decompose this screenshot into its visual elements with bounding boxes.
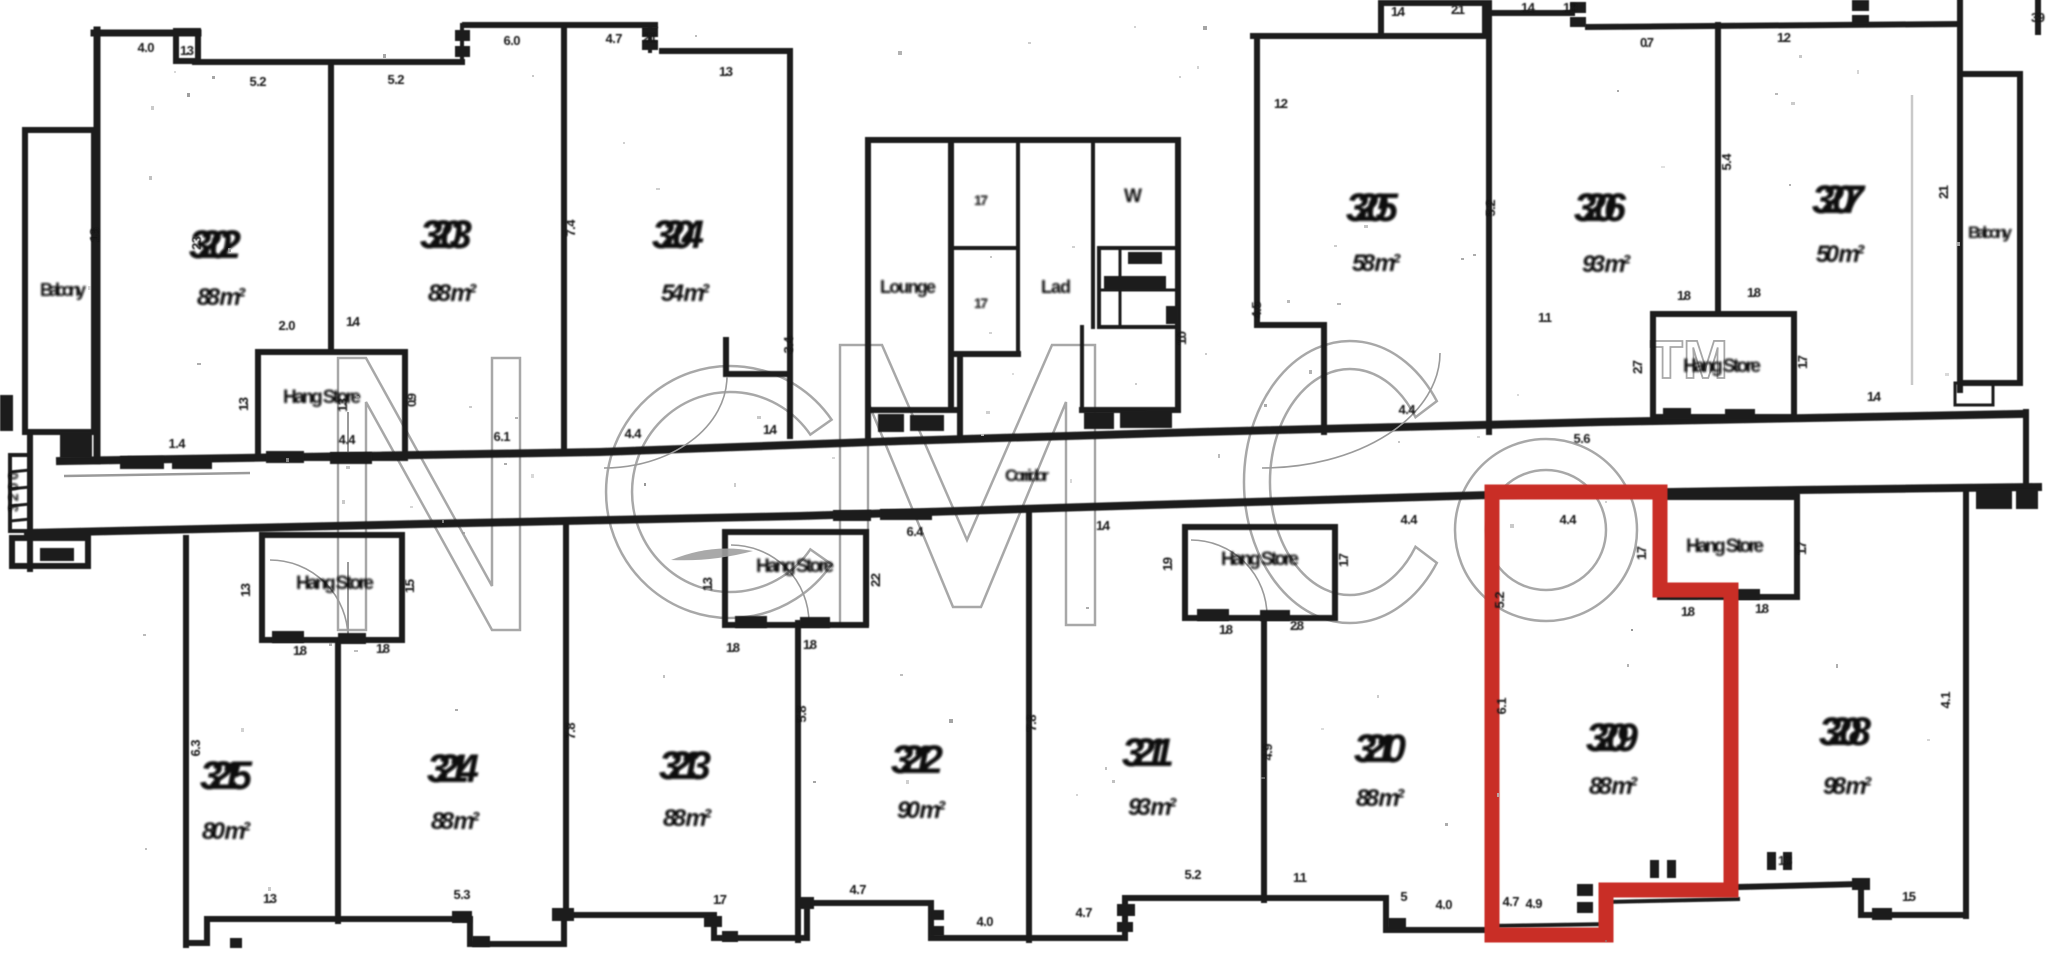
svg-text:6.1: 6.1: [1494, 698, 1509, 715]
svg-text:1.8: 1.8: [1681, 604, 1695, 619]
svg-text:2.0: 2.0: [279, 318, 296, 333]
svg-text:1.4: 1.4: [1096, 518, 1111, 533]
svg-text:4.4: 4.4: [1401, 512, 1419, 527]
svg-text:1.0: 1.0: [1174, 331, 1189, 345]
svg-text:50 m²: 50 m²: [1816, 241, 1865, 268]
svg-text:1.3: 1.3: [1563, 0, 1577, 15]
svg-text:4.4: 4.4: [625, 426, 643, 441]
svg-text:93 m²: 93 m²: [1582, 251, 1631, 278]
svg-text:93 m²: 93 m²: [1128, 794, 1177, 821]
svg-text:7.8: 7.8: [1024, 715, 1039, 732]
svg-text:1.7: 1.7: [1795, 355, 1810, 369]
svg-text:4.4: 4.4: [1560, 512, 1578, 527]
svg-text:6.1: 6.1: [494, 429, 511, 444]
svg-text:Hang Store: Hang Store: [756, 556, 834, 577]
svg-text:54 m²: 54 m²: [661, 280, 710, 307]
svg-text:3205: 3205: [1346, 186, 1399, 230]
svg-text:0.7: 0.7: [1640, 35, 1654, 50]
svg-text:1.8: 1.8: [803, 637, 817, 652]
svg-text:1.3: 1.3: [180, 43, 194, 58]
svg-text:5.4: 5.4: [1719, 153, 1734, 171]
svg-text:3203: 3203: [420, 213, 472, 257]
svg-text:88 m²: 88 m²: [431, 808, 480, 835]
svg-text:Lounge: Lounge: [880, 277, 936, 297]
svg-text:1.3: 1.3: [236, 397, 251, 411]
svg-text:3210: 3210: [1354, 727, 1406, 771]
svg-text:3209: 3209: [1586, 716, 1639, 760]
svg-text:2.1: 2.1: [1936, 185, 1951, 199]
svg-text:3215: 3215: [200, 754, 253, 798]
svg-text:4.9: 4.9: [1526, 896, 1543, 911]
svg-text:58 m²: 58 m²: [1352, 250, 1401, 277]
svg-text:1.8: 1.8: [293, 643, 307, 658]
svg-text:1.5: 1.5: [1902, 889, 1916, 904]
svg-text:3204: 3204: [652, 213, 704, 257]
svg-text:5.2: 5.2: [1185, 867, 1202, 882]
svg-text:Hang Store: Hang Store: [1686, 536, 1764, 557]
svg-text:1.2: 1.2: [1777, 30, 1791, 45]
svg-text:Balcony: Balcony: [40, 280, 86, 300]
svg-text:7.8: 7.8: [563, 723, 578, 740]
svg-text:4.5: 4.5: [1249, 302, 1264, 319]
svg-text:1.1: 1.1: [1538, 310, 1552, 325]
svg-text:Lad: Lad: [1041, 277, 1071, 297]
svg-text:1.8: 1.8: [1219, 622, 1233, 637]
svg-text:4.0: 4.0: [1436, 897, 1453, 912]
svg-text:6.4: 6.4: [907, 524, 925, 539]
svg-text:4.4: 4.4: [1399, 402, 1417, 417]
svg-text:5.8: 5.8: [794, 706, 809, 723]
svg-text:4.7: 4.7: [850, 882, 867, 897]
svg-text:1.4: 1.4: [763, 422, 778, 437]
svg-text:6.0: 6.0: [504, 33, 521, 48]
svg-text:3207: 3207: [1812, 178, 1866, 222]
svg-text:W: W: [1124, 186, 1142, 207]
svg-text:4.7: 4.7: [1503, 894, 1520, 909]
svg-text:3212: 3212: [891, 738, 943, 782]
svg-text:2.1: 2.1: [643, 30, 657, 45]
svg-text:1.9: 1.9: [1160, 557, 1175, 571]
svg-text:2.2: 2.2: [868, 573, 883, 587]
svg-text:3208: 3208: [1819, 710, 1872, 754]
svg-text:17: 17: [974, 295, 988, 311]
svg-text:1.3: 1.3: [238, 583, 253, 597]
svg-text:1.7: 1.7: [1336, 553, 1351, 567]
svg-text:1.3: 1.3: [1778, 853, 1792, 868]
svg-text:5.2: 5.2: [388, 72, 405, 87]
svg-text:3214: 3214: [427, 747, 479, 791]
svg-text:1.8: 1.8: [1677, 288, 1691, 303]
svg-text:5: 5: [1400, 889, 1407, 904]
svg-text:4.0: 4.0: [138, 40, 155, 55]
svg-text:4.7: 4.7: [606, 31, 623, 46]
svg-text:88 m²: 88 m²: [197, 284, 246, 311]
svg-text:1.5: 1.5: [402, 579, 417, 593]
svg-text:1.1: 1.1: [1293, 870, 1307, 885]
svg-text:Hang Store: Hang Store: [296, 573, 374, 594]
svg-text:7.4: 7.4: [563, 219, 578, 237]
svg-text:3213: 3213: [659, 744, 711, 788]
svg-text:1.4: 1.4: [1867, 389, 1882, 404]
svg-text:1.2: 1.2: [1274, 96, 1288, 111]
svg-text:3211: 3211: [1122, 731, 1174, 775]
svg-text:2.8: 2.8: [1290, 618, 1304, 633]
svg-text:1.7: 1.7: [1794, 541, 1809, 555]
svg-text:3.9: 3.9: [2031, 10, 2045, 25]
svg-text:Corridor: Corridor: [1005, 466, 1049, 485]
svg-text:1.4: 1.4: [346, 314, 361, 329]
svg-text:17: 17: [974, 192, 988, 208]
svg-text:1.3: 1.3: [263, 891, 277, 906]
svg-text:0.9: 0.9: [404, 393, 419, 407]
svg-text:1.4: 1.4: [169, 436, 187, 451]
svg-text:Hang Store: Hang Store: [283, 387, 361, 408]
svg-text:2.7: 2.7: [1630, 360, 1645, 374]
svg-text:4.4: 4.4: [339, 432, 357, 447]
svg-text:1.7: 1.7: [713, 892, 727, 907]
svg-text:88 m²: 88 m²: [1356, 785, 1405, 812]
svg-text:4.7: 4.7: [1076, 905, 1093, 920]
svg-text:Balcony: Balcony: [1968, 223, 2013, 242]
svg-text:90 m²: 90 m²: [897, 797, 946, 824]
svg-text:1.8: 1.8: [376, 641, 390, 656]
svg-text:1.8: 1.8: [1747, 285, 1761, 300]
svg-text:3202: 3202: [189, 223, 241, 267]
svg-text:88 m²: 88 m²: [663, 805, 712, 832]
svg-text:1.3: 1.3: [87, 228, 102, 242]
svg-text:1.4: 1.4: [1521, 0, 1536, 15]
svg-text:Hang Store: Hang Store: [1683, 356, 1761, 377]
svg-text:2.1: 2.1: [1451, 2, 1465, 17]
svg-text:4.0: 4.0: [977, 914, 994, 929]
svg-text:3206: 3206: [1574, 186, 1627, 230]
svg-text:3.4: 3.4: [781, 336, 796, 354]
svg-text:1.4: 1.4: [1391, 4, 1406, 19]
svg-text:98 m²: 98 m²: [1823, 773, 1872, 800]
svg-text:88 m²: 88 m²: [428, 280, 477, 307]
svg-text:4.1: 4.1: [1938, 692, 1953, 709]
svg-text:1.8: 1.8: [1755, 601, 1769, 616]
svg-text:Hang Store: Hang Store: [1221, 549, 1299, 570]
svg-text:5.6: 5.6: [1574, 431, 1591, 446]
svg-text:5.2: 5.2: [1492, 592, 1507, 609]
svg-text:1.8: 1.8: [726, 640, 740, 655]
svg-text:1.7: 1.7: [1634, 546, 1649, 560]
svg-text:4.9: 4.9: [1260, 744, 1275, 761]
svg-text:88 m²: 88 m²: [1589, 773, 1638, 800]
svg-text:5.3: 5.3: [454, 887, 471, 902]
svg-text:5.2: 5.2: [1483, 200, 1498, 217]
svg-text:80 m²: 80 m²: [202, 818, 251, 845]
svg-text:1.3: 1.3: [700, 577, 715, 591]
svg-text:1.3: 1.3: [719, 64, 733, 79]
svg-text:5.2: 5.2: [250, 74, 267, 89]
